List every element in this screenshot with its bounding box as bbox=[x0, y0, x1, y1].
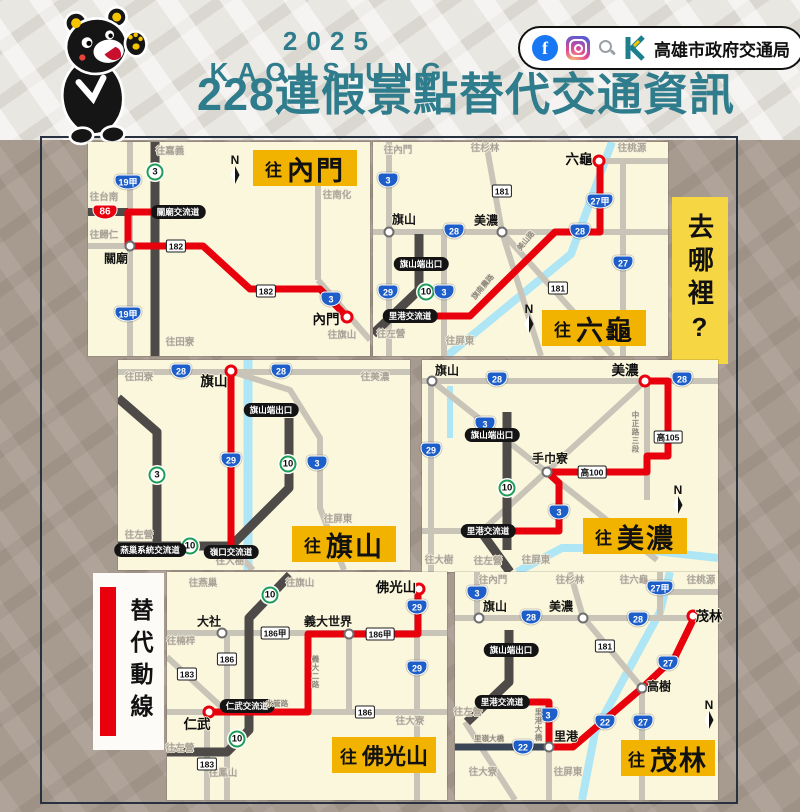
place-marker bbox=[344, 629, 355, 640]
direction-label: 往歸仁 bbox=[90, 231, 119, 241]
local-route-shield: 186 bbox=[217, 653, 237, 666]
direction-label: 往杉林 bbox=[556, 576, 585, 586]
road-name-label: 義大二路 bbox=[311, 655, 319, 689]
road-name-label: 里嶺大橋 bbox=[474, 735, 504, 743]
direction-label: 往左營 bbox=[125, 531, 154, 541]
place-marker bbox=[542, 467, 553, 478]
provincial-route-shield: 27甲 bbox=[646, 581, 673, 596]
compass-needle bbox=[525, 315, 534, 333]
direction-label: 往台南 bbox=[90, 193, 119, 203]
direction-label: 往燕巢 bbox=[189, 579, 218, 589]
place-label: 旗山 bbox=[483, 601, 507, 614]
dest-label: 美濃 bbox=[612, 364, 639, 378]
map-panel-qishan: 往田寮往美濃往左營往屏東往大樹282829331010旗山端出口燕巢系統交流道嶺… bbox=[118, 360, 410, 570]
compass-n-label: N bbox=[674, 484, 683, 496]
map-panel-liugui: 往內門往杉林往桃源往屏東往左營旗山美濃六龜329103282827甲271811… bbox=[373, 142, 668, 356]
freeway-route-shield: 10 bbox=[280, 456, 297, 473]
freeway-route-shield: 3 bbox=[149, 467, 166, 484]
local-route-shield: 181 bbox=[492, 185, 512, 198]
place-marker bbox=[637, 683, 648, 694]
north-compass-icon: N bbox=[231, 154, 240, 184]
direction-label: 往內門 bbox=[384, 146, 413, 156]
social-bar: f 高雄市政府交通局 bbox=[518, 26, 800, 70]
road-name-label: 里港大橋 bbox=[534, 708, 542, 742]
dest-label: 茂林 bbox=[696, 610, 723, 624]
place-marker bbox=[474, 613, 485, 624]
place-label: 美濃 bbox=[474, 215, 498, 228]
direction-label: 往美濃 bbox=[361, 373, 390, 383]
interchange-pill: 旗山端出口 bbox=[244, 403, 299, 417]
place-marker bbox=[497, 227, 508, 238]
direction-label: 往六龜 bbox=[620, 576, 649, 586]
dest-label: 內門 bbox=[313, 313, 340, 327]
local-route-shield: 186甲 bbox=[366, 628, 395, 641]
place-label: 美濃 bbox=[549, 601, 573, 614]
panel-title: 往佛光山 bbox=[332, 737, 436, 773]
direction-label: 往嘉義 bbox=[156, 147, 185, 157]
direction-label: 往內門 bbox=[479, 576, 508, 586]
direction-label: 往大寮 bbox=[469, 768, 498, 778]
alt-route-legend: 替代動線 bbox=[93, 573, 164, 750]
instagram-icon bbox=[566, 36, 590, 60]
local-route-shield: 183 bbox=[197, 758, 217, 771]
place-marker bbox=[544, 742, 555, 753]
panel-title-prefix: 往 bbox=[265, 156, 282, 181]
search-icon bbox=[598, 39, 616, 57]
direction-label: 往左營 bbox=[474, 557, 503, 567]
direction-label: 往田寮 bbox=[125, 373, 154, 383]
provincial-route-shield: 19甲 bbox=[114, 307, 141, 322]
place-label: 義大世界 bbox=[304, 616, 352, 629]
route-red bbox=[128, 212, 347, 317]
direction-label: 往杉林 bbox=[471, 144, 500, 154]
north-compass-icon: N bbox=[525, 303, 534, 333]
direction-label: 往左營 bbox=[377, 330, 406, 340]
direction-label: 往大樹 bbox=[425, 556, 454, 566]
destination-marker bbox=[639, 375, 652, 388]
direction-label: 往左營 bbox=[454, 708, 483, 718]
road-name-label: 中正路三段 bbox=[631, 411, 639, 454]
place-label: 關廟 bbox=[104, 253, 128, 266]
local-route-shield: 182 bbox=[256, 285, 276, 298]
freeway-route-shield: 3 bbox=[147, 164, 164, 181]
interchange-pill: 旗山端出口 bbox=[484, 643, 539, 657]
local-route-shield: 181 bbox=[595, 640, 615, 653]
place-marker bbox=[217, 628, 228, 639]
where-to-go-box: 去哪裡? bbox=[672, 197, 728, 364]
north-compass-icon: N bbox=[674, 484, 683, 514]
panel-title-prefix: 往 bbox=[628, 746, 645, 771]
route-red bbox=[488, 381, 668, 531]
place-label: 高樹 bbox=[647, 681, 671, 694]
panel-title-name: 佛光山 bbox=[362, 739, 428, 771]
panel-title-name: 旗山 bbox=[326, 525, 384, 564]
place-label: 里港 bbox=[554, 731, 578, 744]
compass-n-label: N bbox=[525, 303, 534, 315]
freeway-route-shield: 10 bbox=[418, 284, 435, 301]
compass-needle bbox=[705, 711, 714, 729]
map-panel-meinong: 旗山美濃2828329310高105高100旗山端出口里港交流道手巾寮中正路三段… bbox=[422, 360, 718, 572]
direction-label: 往楠梓 bbox=[167, 637, 196, 647]
place-label: 旗山 bbox=[392, 214, 416, 227]
local-route-shield: 182 bbox=[166, 240, 186, 253]
map-panel-maolin: 往內門往杉林往六龜往桃源往左營往大寮往屏東旗山美濃高樹里港茂林3282827甲2… bbox=[455, 572, 718, 800]
panel-title-name: 內門 bbox=[287, 149, 345, 188]
compass-n-label: N bbox=[231, 154, 240, 166]
direction-label: 往旗山 bbox=[286, 579, 315, 589]
panel-title-prefix: 往 bbox=[340, 743, 357, 768]
interchange-pill: 旗山端出口 bbox=[465, 428, 520, 442]
route-red bbox=[209, 589, 418, 712]
direction-label: 往田寮 bbox=[166, 338, 195, 348]
provincial-route-shield: 19甲 bbox=[114, 175, 141, 190]
panel-title: 往茂林 bbox=[621, 740, 715, 776]
map-panel-neimen: 往嘉義往台南往歸仁往田寮往南化往旗山319甲19甲861821823關廟交流道關… bbox=[88, 142, 370, 356]
freeway-route-shield: 10 bbox=[229, 731, 246, 748]
road-name-label: 水管路 bbox=[266, 700, 289, 708]
freeway-route-shield: 10 bbox=[499, 480, 516, 497]
panel-title: 往美濃 bbox=[583, 518, 687, 554]
interchange-pill: 里港交流道 bbox=[475, 695, 530, 709]
direction-label: 往南化 bbox=[323, 191, 352, 201]
direction-label: 往左營 bbox=[166, 744, 195, 754]
dest-label: 仁武 bbox=[184, 718, 211, 732]
freeway-route-shield: 10 bbox=[262, 587, 279, 604]
direction-label: 往桃源 bbox=[687, 576, 716, 586]
interchange-pill: 嶺口交流道 bbox=[204, 545, 259, 559]
north-compass-icon: N bbox=[705, 699, 714, 729]
destination-marker bbox=[341, 311, 354, 324]
local-route-shield: 183 bbox=[177, 668, 197, 681]
panel-title-name: 美濃 bbox=[617, 517, 675, 556]
panel-title-prefix: 往 bbox=[554, 316, 571, 341]
interchange-pill: 旗山端出口 bbox=[394, 257, 449, 271]
direction-label: 往旗山 bbox=[328, 331, 357, 341]
facebook-icon: f bbox=[532, 35, 558, 61]
interchange-pill: 燕巢系統交流道 bbox=[114, 543, 186, 557]
local-route-shield: 181 bbox=[548, 282, 568, 295]
place-marker bbox=[125, 241, 136, 252]
dest-label: 旗山 bbox=[201, 375, 228, 389]
place-label: 旗山 bbox=[435, 365, 459, 378]
place-label: 手巾寮 bbox=[532, 453, 568, 466]
bureau-k-logo-icon bbox=[624, 35, 646, 61]
alt-route-label: 替代動線 bbox=[123, 598, 157, 726]
direction-label: 往鳳山 bbox=[209, 769, 238, 779]
panel-title-name: 六龜 bbox=[576, 309, 634, 348]
local-route-shield: 186甲 bbox=[261, 627, 290, 640]
interchange-pill: 關廟交流道 bbox=[151, 205, 206, 219]
provincial-route-shield: 27甲 bbox=[586, 194, 613, 209]
local-route-shield: 186 bbox=[355, 706, 375, 719]
place-marker bbox=[578, 613, 589, 624]
road-dark bbox=[118, 398, 289, 546]
place-marker bbox=[384, 227, 395, 238]
direction-label: 往屏東 bbox=[324, 515, 353, 525]
panel-title: 往六龜 bbox=[542, 310, 646, 346]
poster: 2025 KAOHSIUNG 228連假景點替代交通資訊 f 高雄市政府交通局 … bbox=[0, 0, 800, 812]
direction-label: 往桃源 bbox=[618, 144, 647, 154]
map-panel-foguangshan: 往燕巢往旗山往楠梓往左營往鳳山往大寮大社義大世界佛光山仁武10102929186… bbox=[167, 572, 447, 800]
dest-label: 六龜 bbox=[566, 153, 593, 167]
direction-label: 往屏東 bbox=[554, 768, 583, 778]
local-route-shield: 高100 bbox=[578, 466, 607, 479]
interchange-pill: 里港交流道 bbox=[461, 524, 516, 538]
panel-title: 往內門 bbox=[253, 150, 357, 186]
direction-label: 往大寮 bbox=[396, 717, 425, 727]
compass-needle bbox=[231, 166, 240, 184]
agency-name: 高雄市政府交通局 bbox=[654, 36, 790, 61]
local-route-shield: 高105 bbox=[654, 431, 683, 444]
place-label: 大社 bbox=[197, 616, 221, 629]
panel-title-prefix: 往 bbox=[595, 524, 612, 549]
alt-route-red-bar bbox=[100, 587, 116, 736]
panel-title: 往旗山 bbox=[292, 526, 396, 562]
panel-title-name: 茂林 bbox=[650, 739, 708, 778]
destination-marker bbox=[593, 155, 606, 168]
panel-title-prefix: 往 bbox=[304, 532, 321, 557]
dest-label: 佛光山 bbox=[376, 581, 417, 595]
direction-label: 往屏東 bbox=[522, 556, 551, 566]
bear-mascot-icon bbox=[27, 0, 159, 151]
direction-label: 往屏東 bbox=[446, 337, 475, 347]
compass-n-label: N bbox=[705, 699, 714, 711]
interchange-pill: 里港交流道 bbox=[383, 309, 438, 323]
compass-needle bbox=[674, 496, 683, 514]
